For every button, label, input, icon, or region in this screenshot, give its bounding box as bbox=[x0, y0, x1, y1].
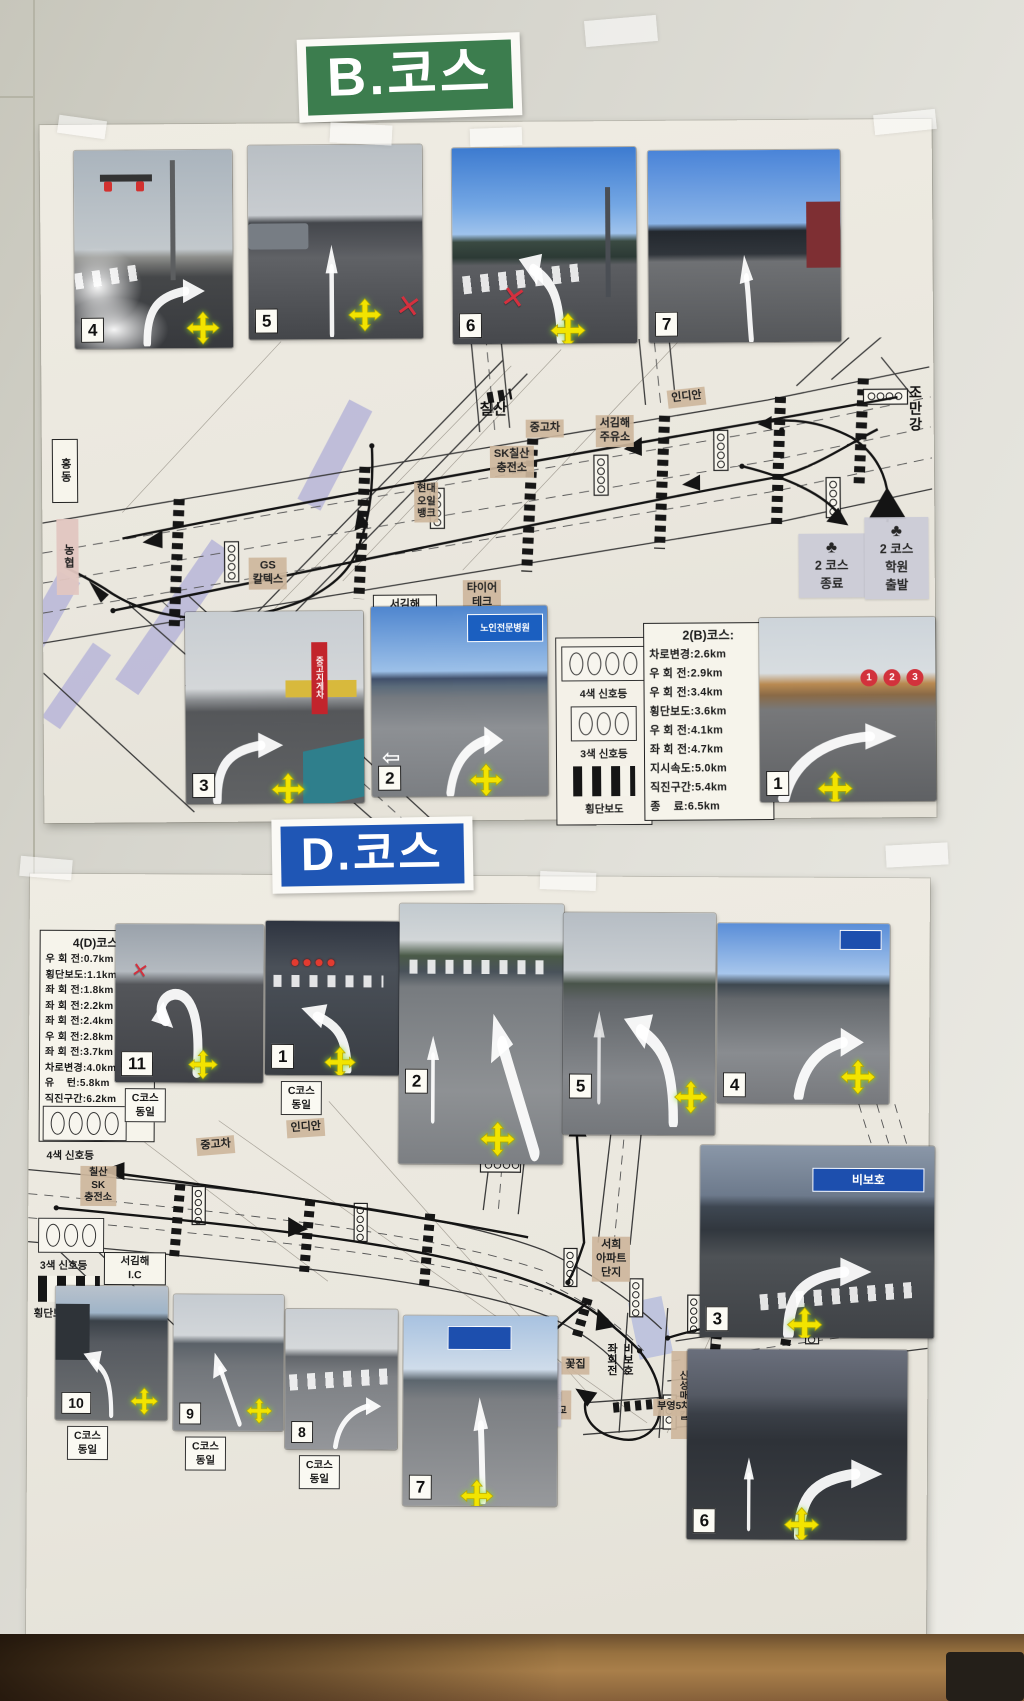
photo-number-tag: 3 bbox=[192, 773, 216, 798]
legend-label-four: 4색 신호등 bbox=[46, 1148, 93, 1163]
maplabel-chilsan: 칠산 bbox=[479, 398, 507, 419]
maplabel-sk-station: SK칠산 충전소 bbox=[490, 446, 534, 478]
photo-d3: 비보호 3 bbox=[700, 1145, 935, 1338]
photo-number-tag: 6 bbox=[459, 313, 483, 338]
tape bbox=[330, 122, 393, 145]
photo-b3: 중고지게차 3 bbox=[185, 611, 364, 804]
photo-number-tag: 7 bbox=[409, 1475, 433, 1500]
endpoint-label: 2 코스 종료 bbox=[815, 556, 849, 592]
photo-number-tag: 4 bbox=[81, 318, 105, 343]
photo-number-tag: 5 bbox=[569, 1073, 593, 1098]
red-light bbox=[104, 182, 112, 192]
photo-d11: ✕ 11 bbox=[115, 924, 264, 1083]
course-b-info-row: 차로변경:2.6km bbox=[649, 645, 767, 665]
maplabel-indian: 인디안 bbox=[286, 1118, 325, 1138]
four-way-cross-icon bbox=[673, 1079, 709, 1115]
marker-3: 3 bbox=[906, 669, 923, 686]
photo-note: C코스 동일 bbox=[67, 1426, 108, 1461]
photo-number-tag: 9 bbox=[179, 1402, 201, 1424]
four-way-cross-icon bbox=[783, 1506, 821, 1541]
blue-road-sign: 노인전문병원 bbox=[467, 614, 543, 643]
tape bbox=[885, 842, 948, 867]
route-arrow-slight-right bbox=[305, 1359, 385, 1449]
four-way-cross-icon bbox=[816, 769, 854, 802]
legend-label-cross: 횡단보도 bbox=[585, 801, 624, 816]
maplabel-flower-shop: 꽃집 bbox=[561, 1356, 589, 1374]
endpoint-course2-start: ♣ 2 코스 학원 출발 bbox=[864, 517, 929, 600]
maplabel-hyundai-oil: 현대 오일 뱅크 bbox=[414, 482, 439, 522]
four-way-cross-icon bbox=[270, 771, 306, 804]
course-d-title: D.코스 bbox=[280, 823, 464, 886]
course-b-info-row: 우 회 전:3.4km bbox=[649, 683, 767, 703]
photo-d1: 1 bbox=[265, 921, 400, 1076]
course-b-title: B.코스 bbox=[306, 39, 514, 115]
clover-icon: ♣ bbox=[891, 522, 902, 539]
maplabel-used-cars: 중고차 bbox=[196, 1135, 236, 1156]
desk-shadow bbox=[0, 1634, 560, 1701]
photo-number-tag: 8 bbox=[291, 1421, 313, 1443]
red-vertical-sign: 중고지게차 bbox=[312, 642, 329, 714]
legend-label-four: 4색 신호등 bbox=[580, 686, 628, 701]
photo-d4: 4 bbox=[717, 923, 890, 1104]
photo-b4: 4 bbox=[74, 150, 233, 349]
wall-scene: 4 ✕ 5 ✕ 6 7 bbox=[0, 0, 1024, 1701]
course-b-info-title: 2(B)코스: bbox=[649, 626, 767, 646]
tape bbox=[584, 15, 658, 47]
poster-course-b: 4 ✕ 5 ✕ 6 7 bbox=[40, 119, 937, 823]
course-b-info-row: 횡단보도:3.6km bbox=[650, 702, 768, 722]
photo-number-tag: 2 bbox=[378, 766, 402, 791]
four-way-cross-icon bbox=[245, 1397, 273, 1425]
maplabel-seogimhae-ic: 서김해 I.C bbox=[104, 1252, 166, 1286]
maplabel-unprotected-left: 비보호 좌회전 bbox=[603, 1343, 635, 1376]
four-way-cross-icon bbox=[839, 1058, 877, 1096]
four-way-cross-icon bbox=[347, 297, 383, 333]
maplabel-jomangang: 조만강 bbox=[905, 385, 925, 433]
photo-b2: 노인전문병원 ⇦ 2 bbox=[371, 606, 548, 797]
photo-number-tag: 1 bbox=[271, 1044, 295, 1069]
photo-d6: 6 bbox=[687, 1349, 908, 1540]
course-b-info-box: 2(B)코스: 차로변경:2.6km 우 회 전:2.9km 우 회 전:3.4… bbox=[643, 622, 774, 821]
photo-number-tag: 10 bbox=[61, 1392, 91, 1414]
marker-1: 1 bbox=[860, 669, 877, 686]
signal-bar bbox=[100, 174, 152, 181]
maplabel-chilsan-sk: 칠산 SK 충전소 bbox=[80, 1166, 116, 1206]
photo-d5: 5 bbox=[563, 912, 716, 1135]
maplabel-seogimhae-gas: 서김해 주유소 bbox=[596, 415, 635, 447]
crosswalk-icon bbox=[573, 766, 635, 796]
maplabel-nonghyup: 농협 bbox=[56, 519, 78, 595]
blue-road-sign bbox=[840, 930, 882, 950]
photo-d2: 2 bbox=[398, 904, 563, 1165]
maplabel-hongdong: 홍동 bbox=[52, 439, 79, 503]
photo-number-tag: 11 bbox=[121, 1051, 153, 1076]
photo-note: C코스 동일 bbox=[281, 1081, 322, 1116]
course-b-info-row: 좌 회 전:4.7km bbox=[650, 740, 768, 760]
lane-arrow-straight bbox=[721, 1431, 778, 1531]
photo-number-tag: 3 bbox=[706, 1306, 730, 1331]
photo-d7: 7 bbox=[403, 1316, 558, 1507]
clover-icon: ♣ bbox=[826, 539, 837, 556]
desk-object bbox=[946, 1652, 1024, 1701]
red-building bbox=[806, 202, 840, 268]
four-way-cross-icon bbox=[185, 310, 221, 346]
signal-legend-b: 4색 신호등 3색 신호등 횡단보도 bbox=[555, 637, 652, 826]
three-color-signal-icon bbox=[571, 706, 637, 741]
endpoint-course2-end: ♣ 2 코스 종료 bbox=[798, 533, 864, 598]
red-signal-lights bbox=[292, 959, 335, 966]
course-b-info-row: 직진구간:5.4km bbox=[650, 778, 768, 798]
teal-sidewalk bbox=[303, 739, 364, 804]
four-way-cross-icon bbox=[549, 311, 587, 344]
photo-d8: 8 bbox=[285, 1309, 398, 1450]
photo-d10: 10 bbox=[55, 1286, 168, 1421]
course-b-info-row: 우 회 전:4.1km bbox=[650, 721, 768, 741]
legend-label-three: 3색 신호등 bbox=[40, 1258, 87, 1273]
tape bbox=[19, 856, 73, 880]
four-way-cross-icon bbox=[479, 1120, 517, 1158]
photo-d9: 9 bbox=[173, 1294, 284, 1431]
marker-2: 2 bbox=[883, 669, 900, 686]
vehicles bbox=[248, 223, 308, 249]
route-point-markers: 1 2 3 bbox=[860, 669, 923, 686]
photo-number-tag: 5 bbox=[255, 308, 279, 333]
maplabel-gs-caltex-1: GS 칼텍스 bbox=[249, 557, 288, 589]
four-way-cross-icon bbox=[187, 1048, 219, 1080]
photo-b7: 7 bbox=[648, 150, 841, 343]
four-color-signal-icon bbox=[561, 646, 645, 682]
photo-note: C코스 동일 bbox=[125, 1088, 166, 1123]
photo-b5: ✕ 5 bbox=[248, 144, 423, 339]
red-light bbox=[136, 181, 144, 191]
tape bbox=[540, 871, 597, 891]
red-x-icon: ✕ bbox=[393, 288, 423, 327]
photo-number-tag: 6 bbox=[693, 1508, 717, 1533]
course-b-info-row: 종 료:6.5km bbox=[650, 797, 768, 817]
four-color-signal-icon bbox=[43, 1106, 127, 1141]
route-arrow-straight bbox=[720, 238, 777, 342]
photo-number-tag: 1 bbox=[766, 771, 790, 796]
poster-course-d: 4(D)코스: 우 회 전:0.7km 횡단보도:1.1km 좌 회 전:1.8… bbox=[26, 874, 930, 1641]
endpoint-label: 2 코스 학원 출발 bbox=[880, 540, 914, 595]
legend-label-three: 3색 신호등 bbox=[580, 746, 628, 761]
photo-number-tag: 2 bbox=[405, 1069, 429, 1094]
course-d-title-card: D.코스 bbox=[271, 816, 473, 894]
maplabel-used-cars: 중고차 bbox=[526, 419, 564, 437]
pole bbox=[605, 187, 611, 297]
photo-note: C코스 동일 bbox=[185, 1436, 226, 1471]
four-way-cross-icon bbox=[323, 1045, 357, 1075]
four-way-cross-icon bbox=[129, 1386, 159, 1416]
course-b-info-row: 우 회 전:2.9km bbox=[649, 664, 767, 684]
wall-seam-2 bbox=[0, 96, 34, 98]
course-b-info-row: 지시속도:5.0km bbox=[650, 759, 768, 779]
four-way-cross-icon bbox=[459, 1478, 495, 1507]
photo-number-tag: 7 bbox=[655, 312, 679, 337]
tape bbox=[470, 127, 523, 147]
blue-road-sign bbox=[448, 1326, 512, 1350]
photo-number-tag: 4 bbox=[723, 1072, 747, 1097]
photo-b6: ✕ 6 bbox=[452, 147, 637, 344]
three-color-signal-icon bbox=[38, 1218, 104, 1253]
photo-b1: 1 2 3 1 bbox=[759, 617, 936, 802]
maplabel-seohui-apt: 서희 아파트 단지 bbox=[592, 1237, 631, 1282]
blue-road-sign: 비보호 bbox=[812, 1168, 924, 1193]
four-way-cross-icon bbox=[786, 1306, 824, 1339]
course-b-title-card: B.코스 bbox=[297, 32, 523, 122]
photo-note: C코스 동일 bbox=[299, 1455, 340, 1490]
four-way-cross-icon bbox=[468, 762, 504, 797]
